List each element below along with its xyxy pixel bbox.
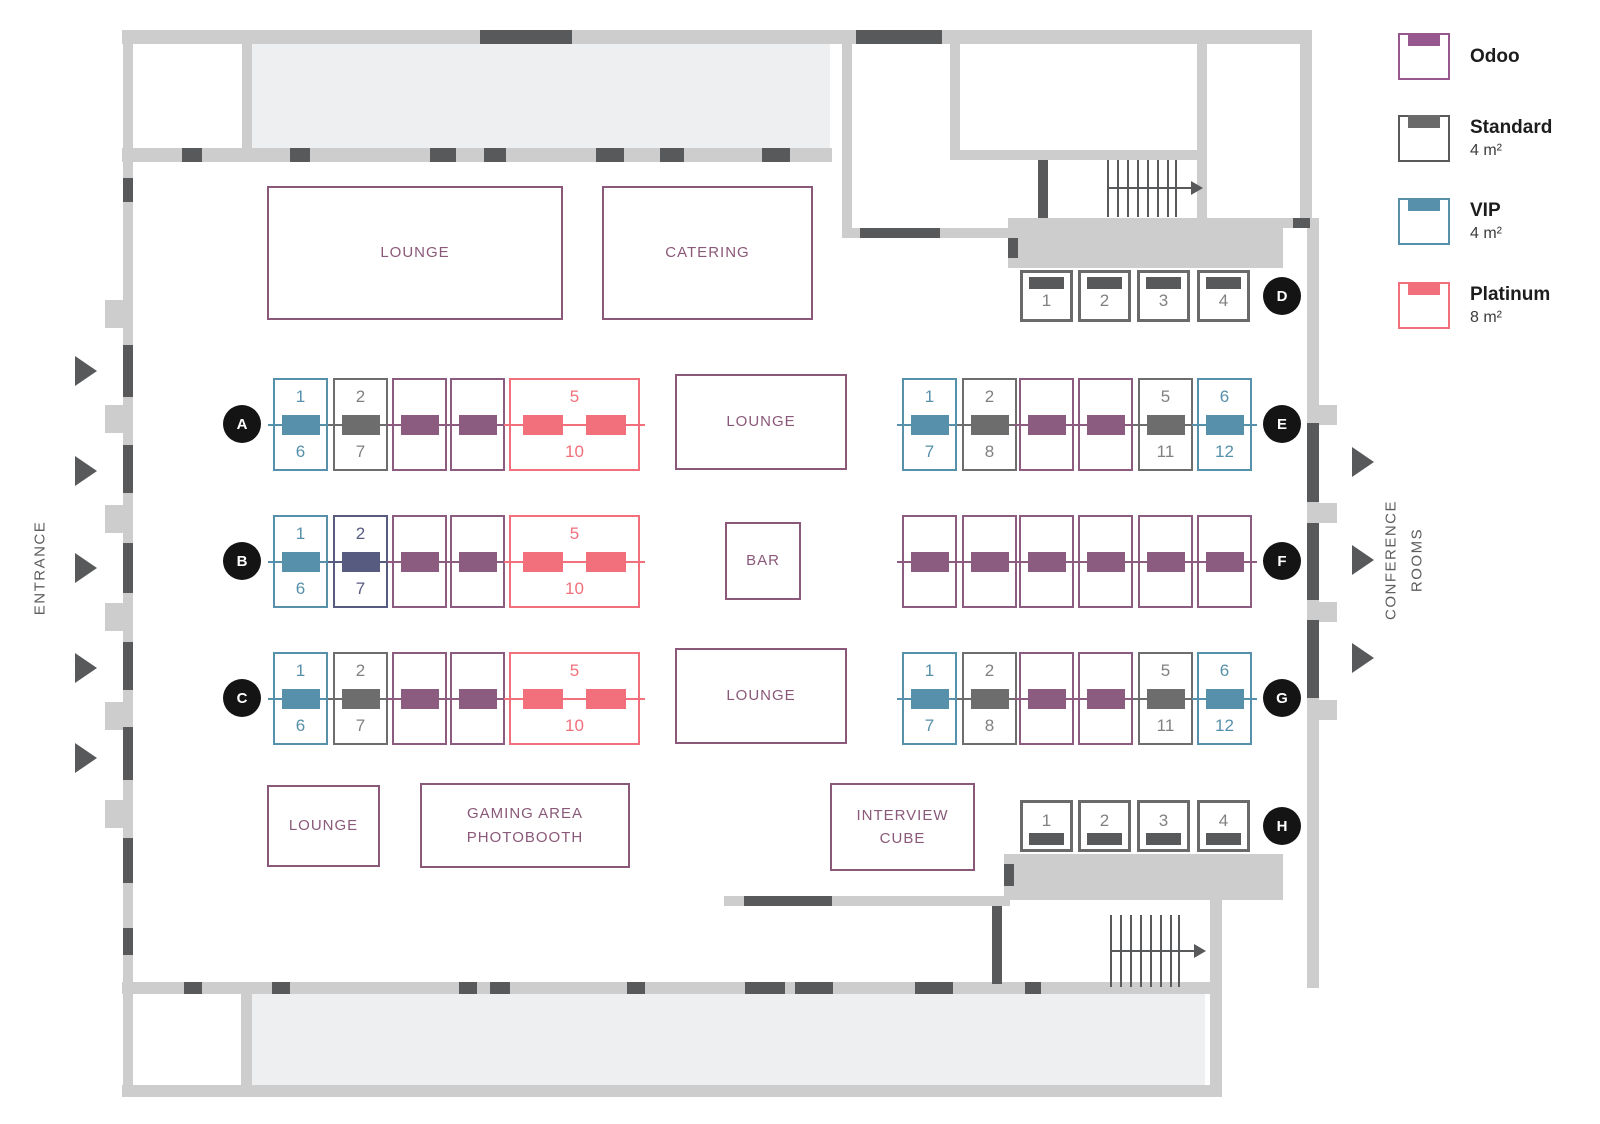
booth-bar xyxy=(911,689,949,709)
booth-odoo xyxy=(962,515,1017,608)
conference-arrow-icon xyxy=(1352,643,1374,673)
booth-number: 2 xyxy=(1081,811,1128,831)
booth-bar xyxy=(911,552,949,572)
booth-odoo xyxy=(392,515,447,608)
booth-number-top: 2 xyxy=(335,661,386,681)
booth-bar xyxy=(1206,689,1244,709)
booth-number-bottom: 10 xyxy=(511,442,638,462)
booth-H3[interactable]: 3 xyxy=(1137,800,1190,852)
booth-bar xyxy=(1029,833,1064,845)
booth-bar xyxy=(1147,689,1185,709)
wall-segment xyxy=(745,982,785,994)
booth-type-icon-bar xyxy=(1408,282,1440,295)
booth-number-top: 5 xyxy=(511,661,638,681)
booth-odoo xyxy=(1019,652,1074,745)
booth-E1-E7[interactable]: 17 xyxy=(902,378,957,471)
booth-bar xyxy=(523,415,563,435)
wall-segment xyxy=(627,982,645,994)
booth-odoo xyxy=(1138,515,1193,608)
booth-odoo xyxy=(1078,652,1133,745)
room-label: INTERVIEW CUBE xyxy=(850,804,955,851)
booth-number-top: 1 xyxy=(275,387,326,407)
wall xyxy=(1319,503,1337,523)
booth-bar xyxy=(401,689,439,709)
entrance-arrow-icon xyxy=(75,456,97,486)
wall xyxy=(842,40,852,230)
stairs-arrow-head xyxy=(1191,181,1203,195)
wall xyxy=(122,148,832,162)
booth-number: 3 xyxy=(1140,811,1187,831)
booth-number: 4 xyxy=(1200,811,1247,831)
legend-size: 4 m² xyxy=(1470,225,1502,243)
wall xyxy=(122,1085,1222,1097)
booth-odoo xyxy=(1019,515,1074,608)
wall-segment xyxy=(1293,218,1310,228)
room-label: LOUNGE xyxy=(726,410,795,433)
legend-title: Odoo xyxy=(1470,46,1520,68)
room-label: GAMING AREA PHOTOBOOTH xyxy=(442,802,608,849)
wall-segment xyxy=(1307,620,1319,698)
wall xyxy=(1300,40,1312,218)
wall-segment xyxy=(1307,423,1319,502)
booth-bar xyxy=(282,689,320,709)
legend-text: VIP4 m² xyxy=(1470,198,1502,245)
booth-bar xyxy=(459,552,497,572)
wall-segment xyxy=(762,148,790,162)
booth-number: 4 xyxy=(1200,291,1247,311)
booth-number-top: 5 xyxy=(511,387,638,407)
wall-segment xyxy=(123,838,133,883)
legend-item-odoo: Odoo xyxy=(1398,33,1520,80)
room-label: LOUNGE xyxy=(380,241,449,264)
booth-number-bottom: 7 xyxy=(335,716,386,736)
booth-bar xyxy=(523,689,563,709)
booth-bar xyxy=(1028,689,1066,709)
booth-bar xyxy=(342,415,380,435)
wall xyxy=(122,30,1312,44)
legend-item-standard: Standard4 m² xyxy=(1398,115,1552,162)
booth-odoo xyxy=(902,515,957,608)
booth-bar xyxy=(1147,552,1185,572)
row-F-marker: F xyxy=(1263,542,1301,580)
booth-bar xyxy=(523,552,563,572)
booth-number-top: 1 xyxy=(275,661,326,681)
booth-number-top: 5 xyxy=(1140,661,1191,681)
booth-number-top: 5 xyxy=(511,524,638,544)
legend-title: Platinum xyxy=(1470,284,1550,306)
legend-title: VIP xyxy=(1470,200,1502,222)
booth-bar xyxy=(1087,689,1125,709)
booth-G6-G12[interactable]: 612 xyxy=(1197,652,1252,745)
wall-segment xyxy=(1008,238,1018,258)
booth-D4[interactable]: 4 xyxy=(1197,270,1250,322)
booth-number-bottom: 12 xyxy=(1199,716,1250,736)
wall-segment xyxy=(123,345,133,397)
booth-bar xyxy=(1147,415,1185,435)
booth-bar xyxy=(1028,415,1066,435)
booth-bar xyxy=(971,415,1009,435)
booth-odoo xyxy=(450,515,505,608)
booth-bar xyxy=(1146,833,1181,845)
booth-bar xyxy=(342,552,380,572)
legend-title: Standard xyxy=(1470,117,1552,139)
wall xyxy=(1319,405,1337,425)
booth-G1-G7[interactable]: 17 xyxy=(902,652,957,745)
booth-bar xyxy=(1087,415,1125,435)
wall-segment xyxy=(123,642,133,690)
entrance-label: ENTRANCE xyxy=(32,521,49,616)
wall-segment xyxy=(596,148,624,162)
booth-H1[interactable]: 1 xyxy=(1020,800,1073,852)
wall xyxy=(105,300,123,328)
conference-arrow-icon xyxy=(1352,447,1374,477)
wall xyxy=(950,150,1207,160)
row-B-marker: B xyxy=(223,542,261,580)
booth-bar xyxy=(1206,415,1244,435)
booth-type-icon xyxy=(1398,282,1450,329)
booth-number-top: 5 xyxy=(1140,387,1191,407)
wall-segment xyxy=(123,727,133,780)
booth-number-top: 2 xyxy=(335,524,386,544)
wall xyxy=(1004,854,1283,900)
room-label: CATERING xyxy=(665,241,749,264)
floor-area xyxy=(250,44,830,148)
wall-segment xyxy=(490,982,510,994)
booth-B1-B6[interactable]: 16 xyxy=(273,515,328,608)
wall xyxy=(105,405,123,433)
room-lounge-bottom: LOUNGE xyxy=(267,785,380,867)
wall-segment xyxy=(1004,864,1014,886)
booth-number-bottom: 12 xyxy=(1199,442,1250,462)
wall-segment xyxy=(795,982,833,994)
wall-segment xyxy=(430,148,456,162)
booth-bar xyxy=(1087,552,1125,572)
booth-number-bottom: 7 xyxy=(335,442,386,462)
booth-type-icon-bar xyxy=(1408,198,1440,211)
booth-E6-E12[interactable]: 612 xyxy=(1197,378,1252,471)
wall xyxy=(1307,218,1319,988)
wall xyxy=(242,44,252,148)
booth-bar xyxy=(1206,552,1244,572)
row-D-marker: D xyxy=(1263,277,1301,315)
wall-segment xyxy=(123,445,133,493)
booth-odoo xyxy=(1019,378,1074,471)
booth-G2-G8[interactable]: 28 xyxy=(962,652,1017,745)
row-G-marker: G xyxy=(1263,679,1301,717)
conference-arrow-icon xyxy=(1352,545,1374,575)
booth-number-bottom: 7 xyxy=(904,442,955,462)
wall-segment xyxy=(1038,160,1048,218)
room-lounge-mid-lower: LOUNGE xyxy=(675,648,847,744)
booth-H4[interactable]: 4 xyxy=(1197,800,1250,852)
booth-odoo xyxy=(1078,515,1133,608)
booth-bar xyxy=(459,415,497,435)
booth-bar xyxy=(586,689,626,709)
wall-segment xyxy=(856,30,942,44)
booth-A1-A6[interactable]: 16 xyxy=(273,378,328,471)
wall xyxy=(105,505,123,533)
booth-C1-C6[interactable]: 16 xyxy=(273,652,328,745)
room-interview-cube: INTERVIEW CUBE xyxy=(830,783,975,871)
booth-E5-E11[interactable]: 511 xyxy=(1138,378,1193,471)
row-E-marker: E xyxy=(1263,405,1301,443)
room-label: BAR xyxy=(746,549,780,572)
wall-segment xyxy=(1025,982,1041,994)
entrance-arrow-icon xyxy=(75,356,97,386)
booth-number-bottom: 10 xyxy=(511,716,638,736)
venue-floor-plan: LOUNGE CATERING LOUNGE BAR LOUNGE LOUNGE… xyxy=(0,0,1600,1124)
booth-type-icon-bar xyxy=(1408,33,1440,46)
row-C-marker: C xyxy=(223,679,261,717)
booth-number-bottom: 11 xyxy=(1140,442,1191,462)
booth-odoo xyxy=(450,652,505,745)
room-catering: CATERING xyxy=(602,186,813,320)
booth-bar xyxy=(401,552,439,572)
stairs-icon xyxy=(1107,160,1177,217)
booth-bar xyxy=(1087,277,1122,289)
booth-odoo xyxy=(1078,378,1133,471)
wall-segment xyxy=(860,228,940,238)
booth-number-bottom: 8 xyxy=(964,442,1015,462)
booth-D1[interactable]: 1 xyxy=(1020,270,1073,322)
wall-segment xyxy=(1307,523,1319,600)
wall xyxy=(1319,700,1337,720)
stairs-icon xyxy=(1110,915,1180,987)
room-lounge-mid: LOUNGE xyxy=(675,374,847,470)
entrance-arrow-icon xyxy=(75,743,97,773)
wall xyxy=(1008,218,1283,268)
booth-number-bottom: 6 xyxy=(275,716,326,736)
legend-text: Standard4 m² xyxy=(1470,115,1552,162)
booth-bar xyxy=(282,415,320,435)
stairs-arrow xyxy=(1107,187,1191,189)
wall-segment xyxy=(123,928,133,955)
booth-A2-A7[interactable]: 27 xyxy=(333,378,388,471)
room-gaming-area: GAMING AREA PHOTOBOOTH xyxy=(420,783,630,868)
booth-number-top: 2 xyxy=(964,387,1015,407)
wall-segment xyxy=(184,982,202,994)
wall xyxy=(105,603,123,631)
booth-number-bottom: 6 xyxy=(275,579,326,599)
legend-text: Platinum8 m² xyxy=(1470,282,1550,329)
row-H-marker: H xyxy=(1263,807,1301,845)
booth-bar xyxy=(911,415,949,435)
wall-segment xyxy=(480,30,572,44)
booth-number-bottom: 10 xyxy=(511,579,638,599)
booth-number: 2 xyxy=(1081,291,1128,311)
booth-bar xyxy=(971,552,1009,572)
booth-type-icon xyxy=(1398,33,1450,80)
wall-segment xyxy=(992,906,1002,984)
booth-bar xyxy=(401,415,439,435)
booth-G5-G11[interactable]: 511 xyxy=(1138,652,1193,745)
booth-number-top: 6 xyxy=(1199,661,1250,681)
booth-number-top: 2 xyxy=(964,661,1015,681)
booth-type-icon-bar xyxy=(1408,115,1440,128)
wall xyxy=(241,994,252,1085)
booth-bar xyxy=(1206,277,1241,289)
booth-number-bottom: 6 xyxy=(275,442,326,462)
booth-bar xyxy=(459,689,497,709)
booth-number-bottom: 7 xyxy=(904,716,955,736)
booth-bar xyxy=(1206,833,1241,845)
wall-segment xyxy=(484,148,506,162)
wall xyxy=(105,702,123,730)
booth-number-top: 6 xyxy=(1199,387,1250,407)
booth-bar xyxy=(971,689,1009,709)
wall-segment xyxy=(660,148,684,162)
floor-plan-screenshot: LOUNGE CATERING LOUNGE BAR LOUNGE LOUNGE… xyxy=(0,0,1600,1124)
legend-size: 4 m² xyxy=(1470,142,1552,160)
row-A-marker: A xyxy=(223,405,261,443)
room-label: LOUNGE xyxy=(289,814,358,837)
booth-number-top: 1 xyxy=(275,524,326,544)
room-bar: BAR xyxy=(725,522,801,600)
stairs-arrow xyxy=(1110,950,1194,952)
booth-number: 3 xyxy=(1140,291,1187,311)
room-label: LOUNGE xyxy=(726,684,795,707)
stairs-arrow-head xyxy=(1194,944,1206,958)
booth-bar xyxy=(586,552,626,572)
conference-rooms-label: CONFERENCE ROOMS xyxy=(1379,485,1430,635)
wall xyxy=(1210,898,1222,1097)
booth-odoo xyxy=(450,378,505,471)
room-lounge-top: LOUNGE xyxy=(267,186,563,320)
booth-B2-B7: 27 xyxy=(333,515,388,608)
legend-text: Odoo xyxy=(1470,33,1520,80)
wall-segment xyxy=(915,982,953,994)
wall xyxy=(950,40,960,150)
floor-area xyxy=(252,994,1205,1085)
booth-type-icon xyxy=(1398,198,1450,245)
booth-bar xyxy=(586,415,626,435)
wall-segment xyxy=(290,148,310,162)
booth-number: 1 xyxy=(1023,811,1070,831)
wall xyxy=(1319,602,1337,622)
booth-odoo xyxy=(392,652,447,745)
booth-number-top: 1 xyxy=(904,387,955,407)
booth-bar xyxy=(1028,552,1066,572)
booth-number-top: 2 xyxy=(335,387,386,407)
booth-bar xyxy=(342,689,380,709)
entrance-arrow-icon xyxy=(75,553,97,583)
booth-number-bottom: 11 xyxy=(1140,716,1191,736)
booth-H2[interactable]: 2 xyxy=(1078,800,1131,852)
booth-D3[interactable]: 3 xyxy=(1137,270,1190,322)
booth-number-bottom: 7 xyxy=(335,579,386,599)
booth-type-icon xyxy=(1398,115,1450,162)
booth-odoo xyxy=(392,378,447,471)
booth-bar xyxy=(1029,277,1064,289)
booth-bar xyxy=(1087,833,1122,845)
booth-number-top: 1 xyxy=(904,661,955,681)
booth-number-bottom: 8 xyxy=(964,716,1015,736)
booth-C5-C10[interactable]: 510 xyxy=(509,652,640,745)
entrance-arrow-icon xyxy=(75,653,97,683)
booth-E2-E8[interactable]: 28 xyxy=(962,378,1017,471)
booth-D2[interactable]: 2 xyxy=(1078,270,1131,322)
wall-segment xyxy=(123,543,133,593)
wall-segment xyxy=(182,148,202,162)
booth-number: 1 xyxy=(1023,291,1070,311)
wall-segment xyxy=(123,178,133,202)
wall-segment xyxy=(459,982,477,994)
wall xyxy=(105,800,123,828)
booth-B5-B10[interactable]: 510 xyxy=(509,515,640,608)
booth-A5-A10[interactable]: 510 xyxy=(509,378,640,471)
booth-bar xyxy=(1146,277,1181,289)
legend-item-vip: VIP4 m² xyxy=(1398,198,1502,245)
legend-size: 8 m² xyxy=(1470,309,1550,327)
wall-segment xyxy=(744,896,832,906)
legend-item-platinum: Platinum8 m² xyxy=(1398,282,1550,329)
wall-segment xyxy=(272,982,290,994)
booth-odoo xyxy=(1197,515,1252,608)
booth-bar xyxy=(282,552,320,572)
booth-C2-C7[interactable]: 27 xyxy=(333,652,388,745)
